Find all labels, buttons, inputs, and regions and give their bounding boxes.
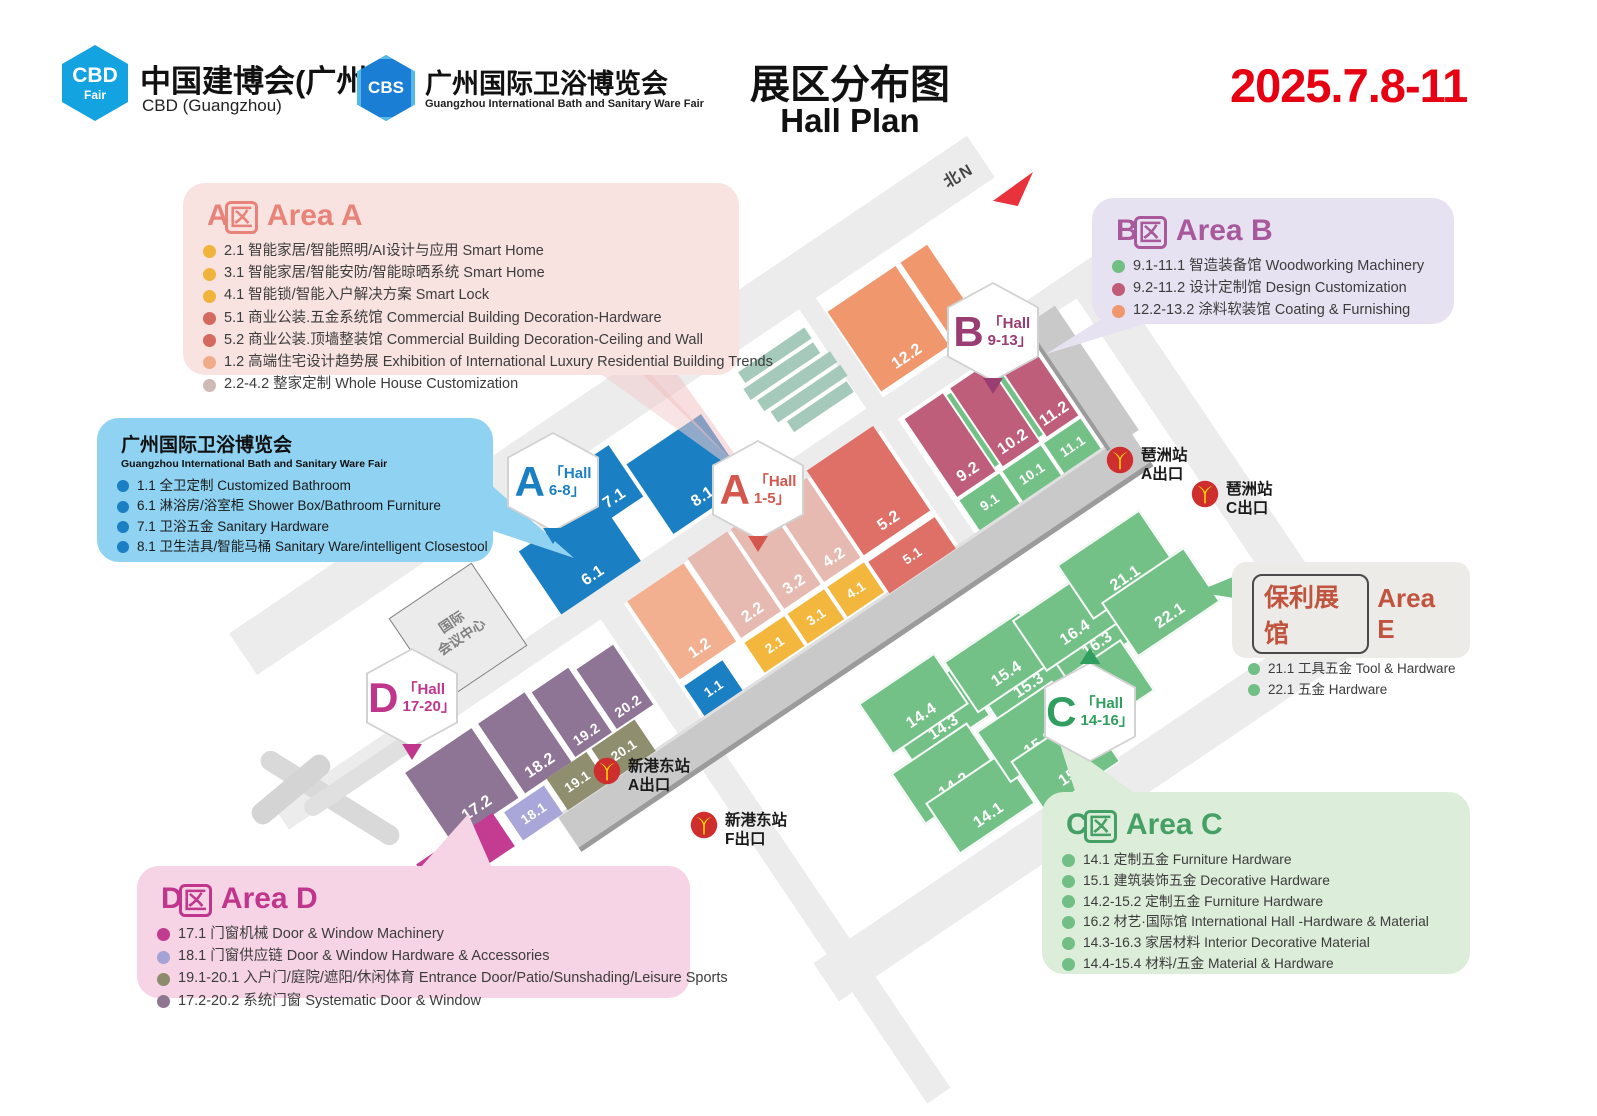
station-xingangdong-exit-a: 新港东站A出口: [593, 757, 690, 796]
legend-item: 14.3-16.3 家居材料 Interior Decorative Mater…: [1062, 934, 1450, 953]
legend-dot: [1112, 260, 1125, 273]
hall-label: 14.1: [970, 799, 1007, 832]
legend-dot: [157, 951, 170, 964]
legend-dot: [203, 334, 216, 347]
legend-dot: [203, 312, 216, 325]
page-title-en: Hall Plan: [710, 102, 990, 140]
badge-hall-1-5: A 「Hall1-5」: [712, 440, 804, 540]
badge-range-line: 17-20」: [402, 698, 455, 715]
legend-bath-title: 广州国际卫浴博览会: [121, 430, 473, 457]
cbd-logo-text: CBD: [72, 64, 118, 88]
legend-area-a-title: A区 Area A: [207, 199, 719, 234]
badge-letter: A: [720, 469, 750, 511]
station-name: 新港东站: [725, 811, 787, 830]
legend-area-e: 保利展馆 Area E 21.1 工具五金 Tool & Hardware 22…: [1232, 562, 1470, 658]
cbd-logo-tag: Fair: [84, 88, 106, 102]
station-name: 新港东站: [628, 757, 690, 776]
legend-dot: [1062, 875, 1075, 888]
station-name: 琶洲站: [1141, 446, 1188, 465]
legend-item: 9.2-11.2 设计定制馆 Design Customization: [1112, 279, 1434, 299]
legend-item: 7.1 卫浴五金 Sanitary Hardware: [117, 518, 473, 536]
hall-label: 22.1: [1152, 600, 1189, 633]
legend-area-b: B区 Area B 9.1-11.1 智造装备馆 Woodworking Mac…: [1092, 198, 1454, 324]
hall-label: 20.2: [611, 691, 644, 720]
legend-item: 12.2-13.2 涂料软装馆 Coating & Furnishing: [1112, 301, 1434, 321]
legend-dot: [203, 268, 216, 281]
legend-dot: [1062, 958, 1075, 971]
legend-item: 3.1 智能家居/智能安防/智能晾晒系统 Smart Home: [203, 264, 719, 284]
cbd-title-en: CBD (Guangzhou): [142, 96, 282, 116]
legend-item: 17.2-20.2 系统门窗 Systematic Door & Window: [157, 992, 670, 1012]
hall-label: 1.1: [701, 676, 726, 700]
metro-logo-icon: [690, 811, 718, 839]
legend-item: 5.1 商业公装.五金系统馆 Commercial Building Decor…: [203, 309, 719, 329]
legend-dot: [157, 928, 170, 941]
hall-label: 11.1: [1057, 432, 1088, 460]
legend-area-b-title: B区 Area B: [1116, 214, 1434, 249]
badge-letter: D: [368, 677, 398, 719]
legend-area-d-title: D区 Area D: [161, 882, 670, 917]
legend-dot: [1062, 916, 1075, 929]
badge-hall-17-20: D 「Hall17-20」: [366, 648, 458, 748]
badge-letter: B: [953, 311, 983, 353]
hall-label: 5.1: [900, 543, 925, 567]
cbd-logo: CBD Fair: [62, 45, 128, 121]
legend-dot: [117, 521, 129, 533]
legend-dot: [1248, 684, 1260, 696]
badge-letter: A: [515, 461, 545, 503]
hall-label: 10.1: [1016, 459, 1047, 487]
legend-dot: [1248, 663, 1260, 675]
badge-range-line: 6-8」: [549, 482, 592, 499]
legend-item: 4.1 智能锁/智能入户解决方案 Smart Lock: [203, 286, 719, 306]
badge-range-line: 14-16」: [1080, 712, 1133, 729]
legend-item: 19.1-20.1 入户门/庭院/遮阳/休闲体育 Entrance Door/P…: [157, 969, 670, 989]
hall-label: 1.2: [685, 635, 715, 663]
station-exit: C出口: [1226, 499, 1273, 518]
station-pazhou-exit-c: 琶洲站C出口: [1191, 480, 1273, 519]
legend-bath-fair: 广州国际卫浴博览会 Guangzhou International Bath a…: [97, 418, 493, 562]
legend-item: 14.1 定制五金 Furniture Hardware: [1062, 851, 1450, 870]
legend-item: 14.2-15.2 定制五金 Furniture Hardware: [1062, 893, 1450, 912]
badge-hall-9-13: B 「Hall9-13」: [947, 282, 1039, 382]
cbd-title-cn: 中国建博会(广州): [140, 56, 378, 101]
station-name: 琶洲站: [1226, 480, 1273, 499]
badge-hall-line: 「Hall: [402, 681, 455, 698]
metro-logo-icon: [593, 757, 621, 785]
hall-label: 4.2: [820, 544, 850, 572]
legend-dot: [1062, 937, 1075, 950]
legend-item: 21.1 工具五金 Tool & Hardware: [1248, 660, 1454, 678]
badge-hall-line: 「Hall: [754, 473, 797, 490]
hall-label: 3.2: [780, 571, 810, 599]
badge-letter: C: [1046, 691, 1076, 733]
station-pazhou-exit-a: 琶洲站A出口: [1106, 446, 1188, 485]
legend-dot: [117, 541, 129, 553]
badge-range-line: 1-5」: [754, 490, 797, 507]
legend-dot: [1062, 854, 1075, 867]
hall-label: 2.1: [762, 633, 787, 657]
legend-area-d: D区 Area D 17.1 门窗机械 Door & Window Machin…: [137, 866, 690, 998]
cbs-title-en: Guangzhou International Bath and Sanitar…: [425, 98, 704, 110]
legend-item: 16.2 材艺·国际馆 International Hall -Hardware…: [1062, 913, 1450, 932]
legend-dot: [203, 290, 216, 303]
legend-item: 5.2 商业公装.顶墙整装馆 Commercial Building Decor…: [203, 331, 719, 351]
hall-label: 3.1: [803, 605, 828, 629]
station-exit: F出口: [725, 830, 787, 849]
hall-label: 9.1: [977, 490, 1002, 514]
badge-range-line: 9-13」: [988, 332, 1033, 349]
legend-area-c: C区 Area C 14.1 定制五金 Furniture Hardware 1…: [1042, 792, 1470, 974]
badge-hall-14-16: C 「Hall14-16」: [1044, 662, 1136, 762]
legend-dot: [157, 973, 170, 986]
legend-item: 18.1 门窗供应链 Door & Window Hardware & Acce…: [157, 947, 670, 967]
badge-hall-line: 「Hall: [1080, 695, 1133, 712]
badge-hall-line: 「Hall: [988, 315, 1033, 332]
legend-item: 2.1 智能家居/智能照明/AI设计与应用 Smart Home: [203, 242, 719, 262]
badge-hall-6-8: A 「Hall6-8」: [507, 432, 599, 532]
legend-dot: [203, 245, 216, 258]
station-xingangdong-exit-f: 新港东站F出口: [690, 811, 787, 850]
legend-item: 1.1 全卫定制 Customized Bathroom: [117, 477, 473, 495]
event-date: 2025.7.8-11: [1230, 58, 1467, 113]
polyworld-venue-label: 保利展馆: [1252, 574, 1369, 654]
badge-hall-line: 「Hall: [549, 465, 592, 482]
legend-dot: [157, 995, 170, 1008]
metro-logo-icon: [1106, 446, 1134, 474]
legend-dot: [1112, 305, 1125, 318]
hall-label: 19.1: [561, 767, 592, 795]
legend-dot: [1112, 283, 1125, 296]
legend-dot: [117, 480, 129, 492]
legend-item: 6.1 淋浴房/浴室柜 Shower Box/Bathroom Furnitur…: [117, 497, 473, 515]
legend-item: 22.1 五金 Hardware: [1248, 681, 1454, 699]
legend-item: 15.1 建筑装饰五金 Decorative Hardware: [1062, 872, 1450, 891]
legend-item: 1.2 高端住宅设计趋势展 Exhibition of Internationa…: [203, 353, 719, 373]
station-exit: A出口: [1141, 465, 1188, 484]
legend-bath-subtitle: Guangzhou International Bath and Sanitar…: [121, 458, 473, 470]
metro-logo-icon: [1191, 480, 1219, 508]
legend-dot: [117, 501, 129, 513]
hall-label: 7.1: [600, 485, 630, 513]
hall-label: 5.2: [874, 507, 904, 535]
hall-label: 18.1: [518, 799, 549, 827]
legend-item: 2.2-4.2 整家定制 Whole House Customization: [203, 375, 719, 395]
hall-label: 9.2: [954, 459, 984, 487]
legend-item: 8.1 卫生洁具/智能马桶 Sanitary Ware/intelligent …: [117, 538, 473, 556]
cbs-logo-text: CBS: [368, 78, 404, 98]
hall-label: 2.2: [738, 599, 768, 627]
legend-area-e-title: 保利展馆 Area E: [1252, 574, 1454, 654]
cbs-title-cn: 广州国际卫浴博览会: [425, 62, 668, 101]
hall-label: 6.1: [578, 562, 608, 590]
hall-label: 12.2: [889, 340, 926, 373]
legend-dot: [203, 379, 216, 392]
legend-dot: [1062, 895, 1075, 908]
hall-plan-poster: CBD Fair 中国建博会(广州) CBD (Guangzhou) CBS 广…: [0, 0, 1597, 1116]
legend-item: 9.1-11.1 智造装备馆 Woodworking Machinery: [1112, 257, 1434, 277]
legend-dot: [203, 356, 216, 369]
station-exit: A出口: [628, 776, 690, 795]
legend-item: 14.4-15.4 材料/五金 Material & Hardware: [1062, 955, 1450, 974]
legend-item: 17.1 门窗机械 Door & Window Machinery: [157, 925, 670, 945]
legend-area-c-title: C区 Area C: [1066, 808, 1450, 843]
legend-area-a: A区 Area A 2.1 智能家居/智能照明/AI设计与应用 Smart Ho…: [183, 183, 739, 375]
hall-label: 4.1: [843, 578, 868, 602]
